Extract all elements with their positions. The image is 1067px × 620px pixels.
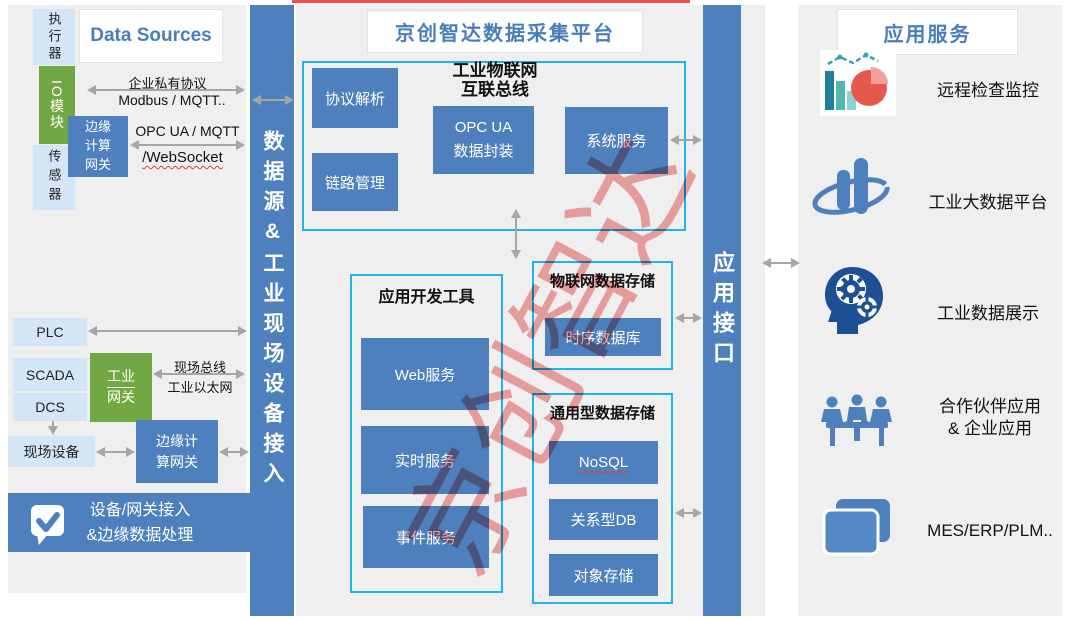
relational-db-box: 关系型DB — [549, 499, 658, 540]
event-service-box: 事件服务 — [363, 506, 489, 568]
nosql-label: NoSQL — [579, 454, 628, 471]
edge-gateway2-line2: 算网关 — [156, 452, 198, 473]
websocket-label: /WebSocket — [130, 149, 235, 166]
iot-bus-title-line1: 工业物联网 — [420, 62, 570, 81]
arrow-fieldbus — [162, 373, 236, 375]
head-gears-icon — [818, 264, 890, 342]
arrow-sysservice-api — [679, 139, 693, 141]
diagram-canvas: 执行器 Data Sources IO模块 传感器 边缘 计算 网关 企业私有协… — [0, 0, 1067, 620]
industrial-gateway-line2: 网关 — [107, 388, 135, 408]
edge-gateway-line1: 边缘 — [85, 118, 111, 137]
scada-box: SCADA — [13, 358, 87, 391]
opcua-line1: OPC UA — [455, 116, 513, 140]
edge-processing-banner: 设备/网关接入 &边缘数据处理 — [8, 493, 250, 552]
arrow-dcs-to-field-device — [52, 421, 54, 426]
iot-bus-title-line2: 互联总线 — [420, 81, 570, 100]
edge-compute-gateway2-box: 边缘计 算网关 — [136, 420, 218, 483]
partner-apps-line1: 合作伙伴应用 — [915, 396, 1065, 418]
app-interface-bar-label: 应用接口 — [706, 251, 738, 371]
edge-gateway-line2: 计算 — [85, 137, 111, 156]
field-device-box: 现场设备 — [8, 436, 95, 467]
object-storage-box: 对象存储 — [549, 554, 658, 596]
app-interface-bar: 应用接口 — [703, 5, 741, 616]
data-sources-title: Data Sources — [90, 25, 211, 48]
partners-icon — [820, 393, 894, 449]
opcua-encapsulation-box: OPC UA 数据封装 — [433, 106, 534, 174]
edge-gateway-line3: 网关 — [85, 156, 111, 175]
private-protocol-label: 企业私有协议 — [120, 73, 215, 92]
app-services-title: 应用服务 — [884, 18, 972, 47]
data-sources-title-box: Data Sources — [79, 9, 223, 63]
tsdb-box: 时序数据库 — [545, 318, 661, 356]
plc-box: PLC — [13, 318, 87, 346]
data-display-label: 工业数据展示 — [920, 299, 1056, 324]
protocol-parse-box: 协议解析 — [312, 68, 398, 128]
arrow-opcua — [139, 144, 236, 146]
banner-line2: &边缘数据处理 — [70, 523, 210, 548]
modbus-mqtt-label: Modbus / MQTT.. — [102, 92, 242, 108]
iot-storage-title: 物联网数据存储 — [534, 270, 671, 291]
check-bubble-icon — [30, 504, 66, 546]
industrial-gateway-line1: 工业 — [107, 367, 135, 388]
edge-gateway2-line1: 边缘计 — [156, 431, 198, 452]
iot-bus-title: 工业物联网 互联总线 — [420, 62, 570, 99]
edge-compute-gateway-box: 边缘 计算 网关 — [68, 116, 128, 177]
industrial-gateway-box: 工业 网关 — [90, 353, 152, 422]
app-services-title-box: 应用服务 — [837, 9, 1018, 55]
arrow-api-services — [771, 262, 791, 264]
big-data-label: 工业大数据平台 — [915, 188, 1061, 213]
general-storage-title: 通用型数据存储 — [534, 402, 671, 423]
opcua-mqtt-label: OPC UA / MQTT — [130, 123, 245, 139]
data-access-bar-label: 数据源&工业现场设备接入 — [257, 130, 287, 492]
banner-line1: 设备/网关接入 — [70, 498, 210, 523]
opcua-line2: 数据封装 — [453, 140, 513, 164]
platform-title: 京创智达数据采集平台 — [395, 17, 615, 46]
arrow-generalstorage-api — [684, 512, 693, 514]
top-accent-line — [292, 0, 690, 3]
arrow-plc — [97, 330, 238, 332]
actuator-box: 执行器 — [33, 9, 75, 65]
platform-title-box: 京创智达数据采集平台 — [367, 10, 643, 53]
industrial-ethernet-label: 工业以太网 — [158, 377, 242, 396]
remote-monitor-label: 远程检查监控 — [920, 76, 1056, 101]
arrow-fielddevice-edge — [105, 451, 126, 453]
big-data-icon — [806, 152, 896, 226]
link-management-box: 链路管理 — [312, 153, 398, 211]
websocket-text: /WebSocket — [142, 149, 223, 166]
arrow-bus-storage — [515, 218, 517, 250]
web-service-box: Web服务 — [361, 338, 489, 410]
arrow-edge-bar — [228, 451, 240, 453]
realtime-service-box: 实时服务 — [361, 426, 489, 494]
dev-tools-title: 应用开发工具 — [360, 283, 493, 307]
nosql-box: NoSQL — [549, 441, 658, 484]
monitor-chart-icon — [820, 50, 896, 116]
partner-apps-line2: & 企业应用 — [915, 418, 1065, 440]
dcs-box: DCS — [13, 393, 87, 421]
system-service-box: 系统服务 — [565, 107, 668, 174]
arrow-iotstorage-api — [684, 317, 693, 319]
enterprise-apps-icon — [818, 497, 894, 559]
enterprise-apps-label: MES/ERP/PLM.. — [915, 521, 1065, 541]
partner-apps-label: 合作伙伴应用 & 企业应用 — [915, 396, 1065, 440]
arrow-across-bar1 — [261, 99, 285, 101]
